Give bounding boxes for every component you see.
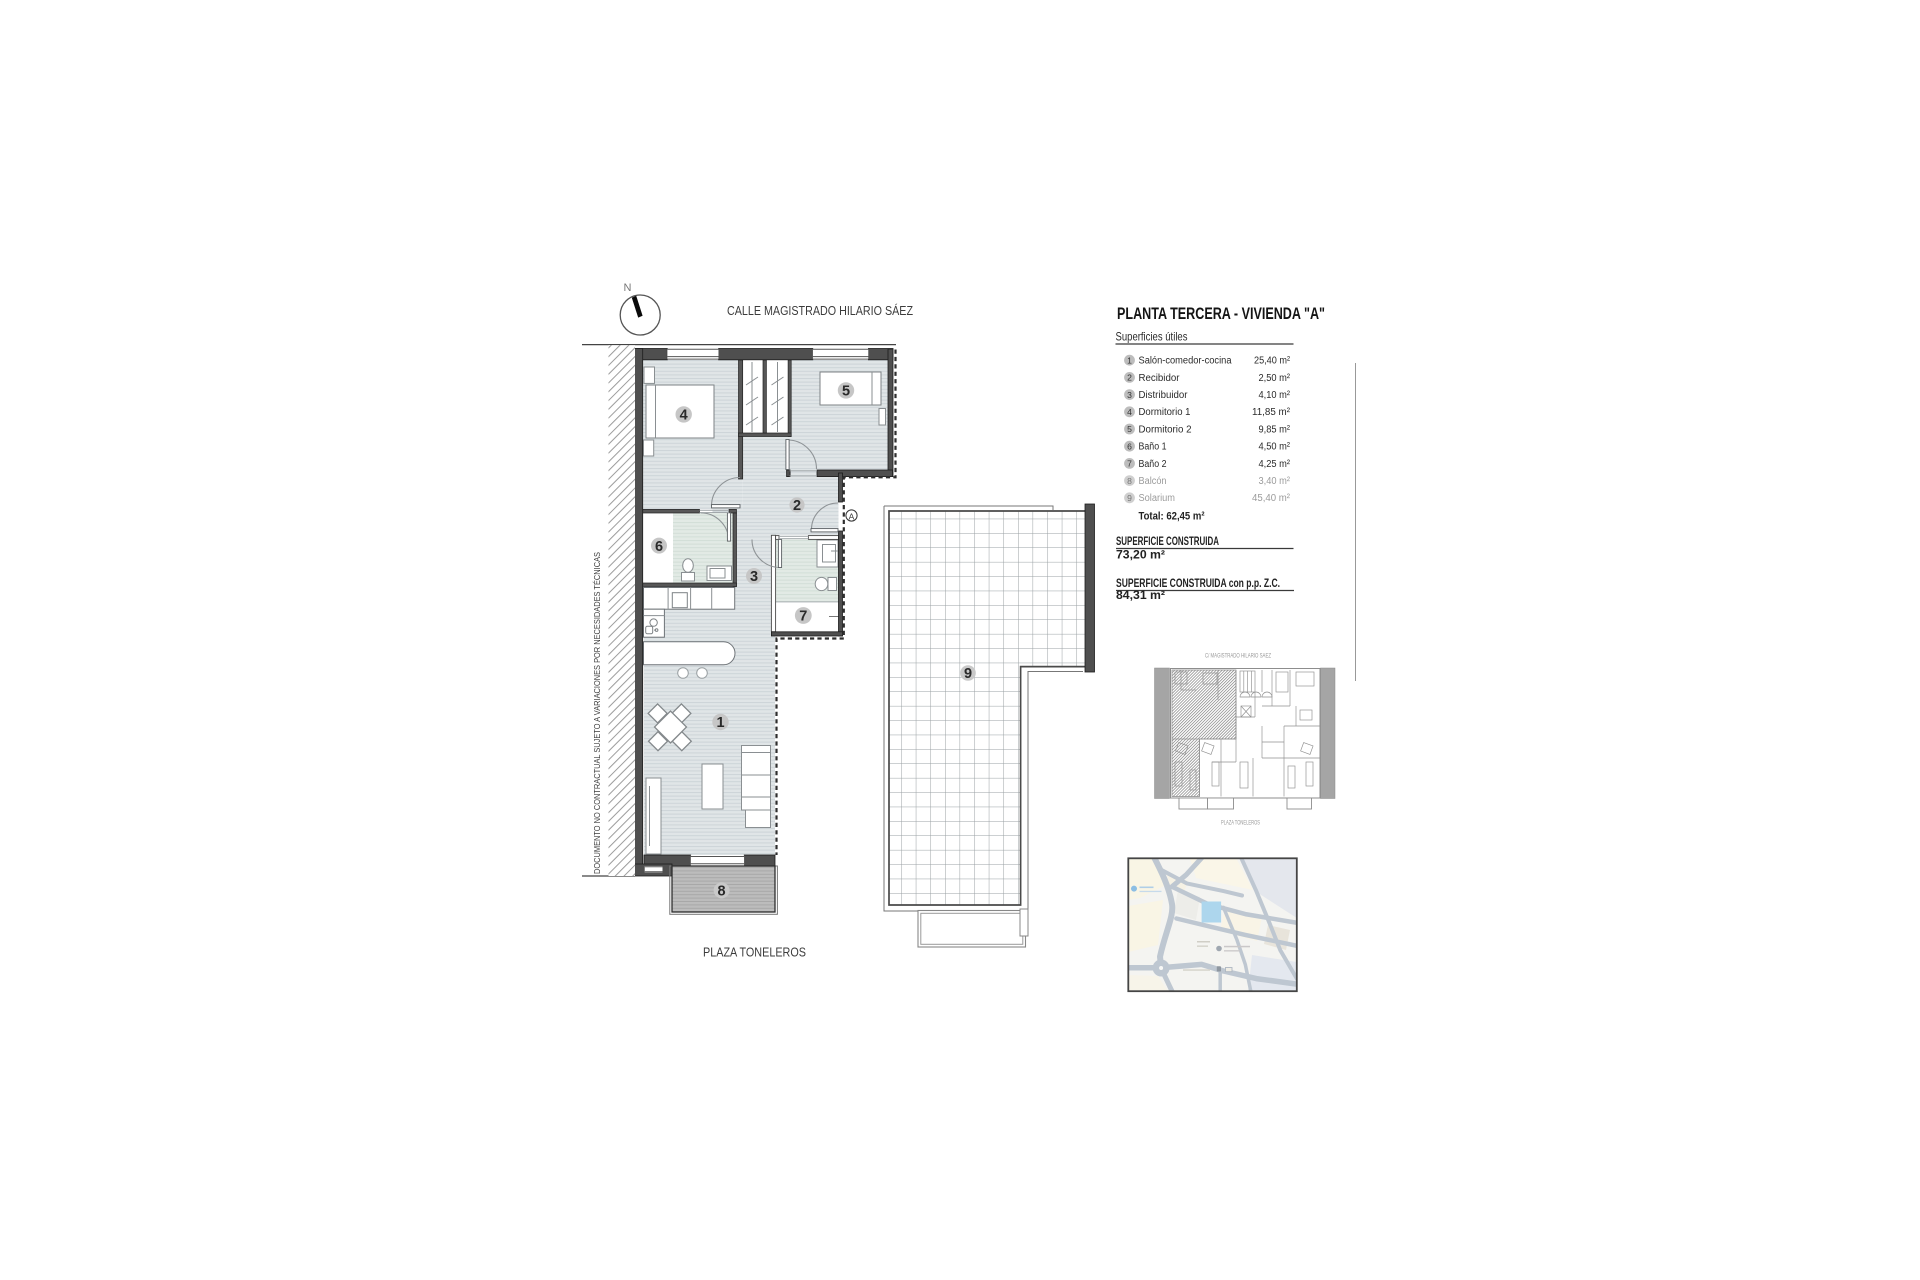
svg-text:73,20 m²: 73,20 m² xyxy=(1116,548,1165,562)
svg-text:4,50 m²: 4,50 m² xyxy=(1259,442,1291,453)
svg-text:8: 8 xyxy=(1127,476,1132,486)
svg-text:9,85 m²: 9,85 m² xyxy=(1259,424,1291,435)
svg-text:11,85 m²: 11,85 m² xyxy=(1252,407,1291,418)
svg-text:2: 2 xyxy=(793,498,801,514)
svg-text:PLAZA TONELEROS: PLAZA TONELEROS xyxy=(703,946,806,960)
svg-text:3,40 m²: 3,40 m² xyxy=(1259,476,1291,487)
svg-text:8: 8 xyxy=(718,884,726,900)
svg-text:1: 1 xyxy=(1127,355,1132,365)
svg-text:4,10 m²: 4,10 m² xyxy=(1259,390,1291,401)
svg-text:Balcón: Balcón xyxy=(1139,476,1167,487)
svg-text:C/ MAGISTRADO HILARIO SAEZ: C/ MAGISTRADO HILARIO SAEZ xyxy=(1205,654,1271,660)
svg-text:Baño 2: Baño 2 xyxy=(1139,459,1167,470)
svg-text:SUPERFICIE CONSTRUIDA: SUPERFICIE CONSTRUIDA xyxy=(1116,534,1219,548)
svg-text:3: 3 xyxy=(750,569,758,585)
svg-text:Dormitorio 2: Dormitorio 2 xyxy=(1139,424,1192,435)
svg-text:1: 1 xyxy=(716,715,724,731)
svg-text:PLAZA TONELEROS: PLAZA TONELEROS xyxy=(1221,821,1260,827)
svg-text:4: 4 xyxy=(680,408,688,424)
svg-text:84,31 m²: 84,31 m² xyxy=(1116,588,1165,602)
svg-text:4,25 m²: 4,25 m² xyxy=(1259,459,1291,470)
svg-text:Distribuidor: Distribuidor xyxy=(1139,390,1189,401)
svg-text:6: 6 xyxy=(655,539,663,555)
svg-text:25,40 m²: 25,40 m² xyxy=(1254,356,1291,367)
svg-text:6: 6 xyxy=(1127,441,1132,451)
svg-text:3: 3 xyxy=(1127,390,1132,400)
svg-text:Solarium: Solarium xyxy=(1139,493,1176,504)
svg-text:Total: 62,45 m²: Total: 62,45 m² xyxy=(1139,511,1205,523)
svg-text:9: 9 xyxy=(1127,493,1132,503)
svg-text:PLANTA TERCERA - VIVIENDA "A": PLANTA TERCERA - VIVIENDA "A" xyxy=(1117,305,1325,323)
svg-text:Superficies útiles: Superficies útiles xyxy=(1116,330,1188,344)
svg-text:N: N xyxy=(624,282,632,294)
svg-text:Salón-comedor-cocina: Salón-comedor-cocina xyxy=(1139,356,1232,367)
svg-text:Dormitorio 1: Dormitorio 1 xyxy=(1139,407,1191,418)
svg-text:A: A xyxy=(849,511,855,521)
svg-text:45,40 m²: 45,40 m² xyxy=(1252,493,1291,504)
svg-text:7: 7 xyxy=(1127,459,1132,469)
svg-text:9: 9 xyxy=(964,666,972,682)
svg-text:CALLE MAGISTRADO HILARIO SÁEZ: CALLE MAGISTRADO HILARIO SÁEZ xyxy=(727,303,913,318)
svg-text:5: 5 xyxy=(1127,424,1132,434)
svg-text:Recibidor: Recibidor xyxy=(1139,373,1181,384)
svg-text:DOCUMENTO NO CONTRACTUAL SUJET: DOCUMENTO NO CONTRACTUAL SUJETO A VARIAC… xyxy=(592,552,602,874)
svg-text:5: 5 xyxy=(842,384,850,400)
svg-text:7: 7 xyxy=(799,609,807,625)
svg-text:Baño 1: Baño 1 xyxy=(1139,442,1167,453)
svg-text:4: 4 xyxy=(1127,407,1132,417)
svg-text:2,50 m²: 2,50 m² xyxy=(1259,373,1291,384)
svg-text:2: 2 xyxy=(1127,373,1132,383)
